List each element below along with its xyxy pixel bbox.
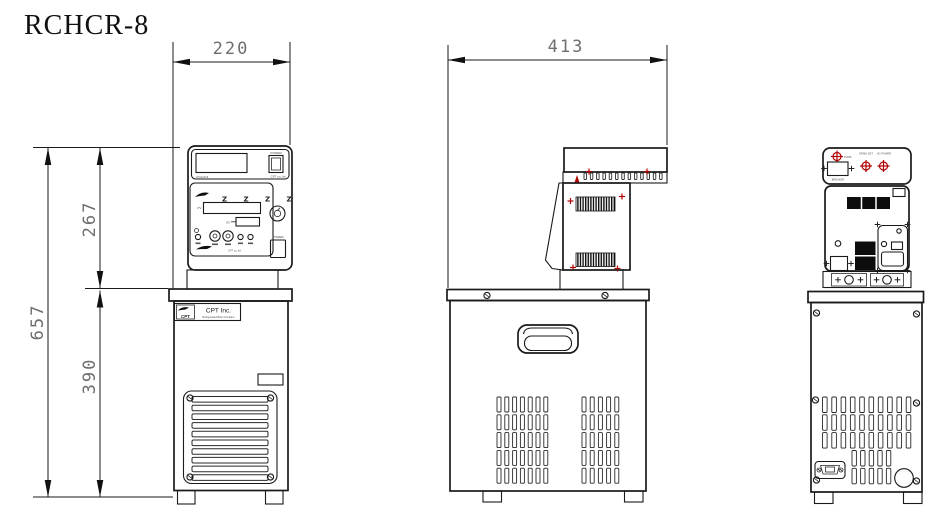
breaker-box <box>828 162 849 176</box>
vent-slot <box>192 457 268 463</box>
setpoint-display <box>204 203 261 214</box>
vent-slot <box>513 450 517 465</box>
vent-slot <box>520 415 524 430</box>
arrowhead-left <box>173 59 190 66</box>
front-foot-right <box>266 491 284 505</box>
vent-slot <box>823 397 828 413</box>
plus-marker <box>905 268 911 274</box>
vent-slot <box>544 468 548 483</box>
display-caption: RCHCR-8 <box>197 175 209 179</box>
vent-slot <box>850 415 855 431</box>
vent-slot <box>869 397 874 413</box>
panel-knob-right-center <box>226 234 230 238</box>
side-head-top-box <box>564 148 667 172</box>
vent-slot <box>888 397 893 413</box>
vent-slot <box>897 415 902 431</box>
ac-power-label: AC POWER <box>877 152 891 156</box>
vent-slot <box>641 173 644 180</box>
arrowhead-down <box>45 480 52 497</box>
panel-brand-text: CPT co.,ltd <box>228 249 241 253</box>
panel-knob-left-center <box>213 234 217 238</box>
power-inlet-socket <box>826 467 835 472</box>
vent-slot <box>544 415 548 430</box>
vent-slot <box>603 173 606 180</box>
arrowhead-up <box>97 148 104 165</box>
vent-slot <box>536 397 540 412</box>
button-label-mark <box>196 243 201 245</box>
rear-vent-block-upper <box>823 397 911 448</box>
vent-slot <box>497 397 501 412</box>
vent-slot <box>878 415 883 431</box>
arrowhead-down <box>97 480 104 497</box>
vent-slot <box>897 433 902 449</box>
drawing-canvas: RCHCR-8 220 413 657 267 390 <box>0 0 946 513</box>
pv-label: PV <box>197 206 201 210</box>
vent-slot <box>832 415 837 431</box>
vent-slot <box>615 415 619 430</box>
pump-label: PUMP <box>844 155 852 159</box>
plate-socket-small <box>892 242 903 250</box>
vent-slot <box>590 468 594 483</box>
badge-company-name: CPT Inc. <box>206 308 231 315</box>
vent-slot <box>660 173 663 180</box>
panel-button <box>238 234 243 239</box>
front-foot-left <box>178 491 196 505</box>
circulation-port-right <box>883 276 892 285</box>
vent-slot <box>192 431 268 437</box>
side-head-sloped-front <box>546 183 564 270</box>
handle-recess <box>525 336 572 351</box>
vent-slot <box>513 415 517 430</box>
side-neck <box>560 270 623 290</box>
handle-upper-curve <box>524 328 573 334</box>
technical-drawing-page: RCHCR-8 220 413 657 267 390 <box>0 0 946 513</box>
rear-foot-left <box>815 492 834 504</box>
plate-hole <box>897 229 901 233</box>
vent-slot <box>869 468 873 484</box>
screw-icon <box>839 468 843 472</box>
plate-hole <box>881 241 886 246</box>
vent-slot <box>852 451 856 467</box>
panel-button <box>195 234 200 239</box>
vent-slot <box>841 433 846 449</box>
vent-slot <box>823 415 828 431</box>
vent-slot <box>832 433 837 449</box>
side-vent-block-left <box>497 397 548 483</box>
vent-slot <box>192 414 268 420</box>
vent-slot <box>520 433 524 448</box>
vent-slot <box>192 466 268 472</box>
front-cabinet-top-plate <box>169 289 292 301</box>
vent-slot <box>536 415 540 430</box>
circulation-port-left <box>845 276 854 285</box>
vent-slot <box>582 433 586 448</box>
vent-slot <box>192 449 268 455</box>
vent-slot <box>860 397 865 413</box>
vent-slot <box>878 451 882 467</box>
dimension-body-height: 390 <box>80 291 103 498</box>
vent-slot <box>615 468 619 483</box>
vent-slot <box>497 415 501 430</box>
front-view: RCHCR-8 POWER CPT co.,ltd Z Z Z Z PV SV … <box>169 146 299 504</box>
vent-slot <box>192 475 268 481</box>
drain-cap <box>895 469 914 488</box>
badge-logo-text: CPT <box>181 314 190 319</box>
vent-slot <box>869 415 874 431</box>
red-plus-marker <box>568 198 574 204</box>
vent-slot <box>906 433 911 449</box>
vent-slot <box>861 451 865 467</box>
vent-slot <box>528 433 532 448</box>
vent-slot <box>607 415 611 430</box>
side-view <box>447 148 667 502</box>
panel-knob-right <box>223 231 233 241</box>
vent-slot <box>520 468 524 483</box>
vent-slot <box>615 450 619 465</box>
connector-pins <box>584 173 662 180</box>
vent-slot <box>886 468 890 484</box>
drain-port-crosshair-icon <box>860 160 872 172</box>
dim-value-267: 267 <box>80 201 100 238</box>
vent-slot <box>832 397 837 413</box>
vent-slot <box>513 433 517 448</box>
screw-icon <box>835 241 841 247</box>
dimension-total-height: 657 <box>28 148 180 498</box>
side-foot-left <box>483 491 502 502</box>
vent-slot <box>536 433 540 448</box>
small-port <box>893 189 905 197</box>
drawing-title: RCHCR-8 <box>24 10 149 41</box>
front-neck <box>187 270 278 289</box>
dim-value-657: 657 <box>28 304 48 341</box>
rear-cabinet-body <box>811 303 922 493</box>
red-arrow-marker <box>574 175 579 183</box>
vent-slot <box>897 397 902 413</box>
vent-slot <box>878 397 883 413</box>
vent-slot <box>906 415 911 431</box>
vent-slot <box>841 397 846 413</box>
vent-slot <box>906 397 911 413</box>
rear-view: PUMP BREAKER DRAIN SET AC POWER <box>808 148 924 504</box>
vent-slot <box>841 415 846 431</box>
front-lcd-display <box>196 154 247 173</box>
vent-slot <box>528 415 532 430</box>
plus-marker <box>821 166 827 172</box>
vent-slot <box>615 397 619 412</box>
brand-text-top: CPT co.,ltd <box>271 175 286 179</box>
screw-icon <box>817 468 821 472</box>
rear-vent-block-lower <box>852 451 891 484</box>
drain-label: DRAIN SET <box>859 152 873 156</box>
vent-slot <box>653 173 656 180</box>
vent-slot <box>497 433 501 448</box>
dim-value-220: 220 <box>213 39 250 59</box>
dim-value-413: 413 <box>548 37 585 57</box>
vent-slot <box>607 450 611 465</box>
vent-slot <box>850 433 855 449</box>
arrowhead-up <box>45 148 52 165</box>
vent-slot <box>192 423 268 429</box>
vent-slot <box>823 433 828 449</box>
vent-slot <box>520 397 524 412</box>
vent-slot <box>536 468 540 483</box>
panel-button <box>248 234 253 239</box>
vent-slot <box>850 397 855 413</box>
screw-icon <box>913 478 919 484</box>
badge-swoosh-icon <box>178 307 189 310</box>
power-button-inner <box>272 158 281 170</box>
button-label-mark <box>248 243 253 245</box>
vent-slot <box>852 468 856 484</box>
vent-slot <box>582 397 586 412</box>
rear-foot-right <box>904 492 923 504</box>
vent-slot <box>622 173 625 180</box>
rear-cabinet-top-plate <box>808 292 924 303</box>
plus-marker <box>848 261 854 267</box>
screw-icon <box>813 310 819 316</box>
vent-slot <box>505 450 509 465</box>
button-label-mark <box>238 243 243 245</box>
vent-slot <box>582 415 586 430</box>
vent-slot <box>869 451 873 467</box>
arrowhead-right <box>650 57 667 64</box>
nameplate <box>258 374 283 385</box>
button-label-mark <box>225 244 231 246</box>
arrowhead-right <box>273 59 290 66</box>
vent-slot <box>590 415 594 430</box>
indicator-icon <box>195 229 199 233</box>
side-foot-right <box>625 491 644 502</box>
plus-marker <box>895 277 901 283</box>
vent-slot <box>528 468 532 483</box>
vent-slot <box>616 173 619 180</box>
vent-slot <box>860 433 865 449</box>
vent-slot <box>505 415 509 430</box>
vent-slot <box>536 450 540 465</box>
breaker-label: BREAKER <box>832 178 845 182</box>
button-label-mark <box>212 244 218 246</box>
dimension-head-height: 267 <box>80 148 168 289</box>
side-head-vent-lower <box>576 253 615 267</box>
vent-slot <box>888 415 893 431</box>
vent-slot <box>609 173 612 180</box>
vent-slot <box>520 450 524 465</box>
vent-slot <box>628 173 631 180</box>
vent-slot <box>598 415 602 430</box>
vent-slot-black-upper <box>855 242 876 256</box>
red-plus-marker <box>619 194 625 200</box>
vent-slot <box>607 397 611 412</box>
screw-icon <box>602 292 608 298</box>
vent-slot <box>607 468 611 483</box>
vent-slot <box>497 450 501 465</box>
plus-marker <box>858 277 864 283</box>
vent-slot <box>582 468 586 483</box>
panel-logo-swoosh-icon <box>196 246 212 250</box>
vent-slot <box>860 415 865 431</box>
panel-knob-left <box>210 231 220 241</box>
vent-slot <box>192 405 268 411</box>
vent-slot <box>528 450 532 465</box>
grille-slats <box>192 397 268 481</box>
vent-slot <box>513 468 517 483</box>
temperature-knob <box>270 206 285 221</box>
vent-slot <box>886 451 890 467</box>
vent-slot <box>878 433 883 449</box>
vent-slot <box>861 468 865 484</box>
pump-port-crosshair-icon <box>831 151 843 163</box>
vent-slot <box>634 173 637 180</box>
vent-slot <box>597 173 600 180</box>
vent-slot <box>192 440 268 446</box>
vent-slot <box>590 433 594 448</box>
sub-display <box>236 218 260 227</box>
vent-slot <box>598 397 602 412</box>
vent-slot <box>615 433 619 448</box>
badge-subtext: Refrigerated Bath Circulator <box>202 315 234 319</box>
plus-marker <box>849 166 855 172</box>
side-head-vent-upper <box>576 197 615 211</box>
vent-slot <box>513 397 517 412</box>
vent-slot <box>584 173 587 180</box>
arrowhead-left <box>448 57 465 64</box>
vent-slot <box>598 433 602 448</box>
screw-icon <box>913 400 919 406</box>
vent-slot <box>544 433 548 448</box>
vent-slot <box>544 397 548 412</box>
knob-pointer <box>278 208 281 211</box>
power-label-bottom: POWER <box>272 235 284 239</box>
temperature-knob-inner <box>274 210 280 216</box>
plate-socket-large <box>882 252 904 266</box>
vent-slot <box>528 397 532 412</box>
dim-value-390: 390 <box>80 358 100 395</box>
dimension-side-depth: 413 <box>448 37 667 288</box>
screw-icon <box>913 311 919 317</box>
vent-slot <box>598 468 602 483</box>
terminal-bar <box>847 197 890 209</box>
power-port-crosshair-icon <box>878 160 890 172</box>
vent-slot <box>505 433 509 448</box>
vent-slot <box>888 433 893 449</box>
plus-marker <box>835 277 841 283</box>
plus-marker <box>874 277 880 283</box>
vent-slot <box>590 397 594 412</box>
vent-slot <box>192 397 268 403</box>
side-cabinet-top-plate <box>447 290 649 301</box>
sv-label: SV <box>226 221 230 225</box>
arrowhead-down <box>97 271 104 288</box>
vent-slot <box>590 173 593 180</box>
screw-icon <box>812 397 818 403</box>
brand-swoosh-icon <box>195 193 209 198</box>
vent-slot <box>598 450 602 465</box>
vent-slot <box>607 433 611 448</box>
vent-slot <box>590 450 594 465</box>
vent-slot <box>505 397 509 412</box>
side-vent-block-right <box>582 397 619 483</box>
screw-icon <box>484 292 490 298</box>
vent-slot <box>878 468 882 484</box>
vent-slot <box>869 433 874 449</box>
vent-slot-black-lower <box>855 257 876 271</box>
power-inlet <box>815 462 845 479</box>
vent-slot <box>582 450 586 465</box>
arrowhead-up <box>97 291 104 308</box>
vent-slot <box>505 468 509 483</box>
vent-slot <box>497 468 501 483</box>
outlet-box <box>831 257 848 271</box>
vent-slot <box>544 450 548 465</box>
power-label-top: POWER <box>270 151 282 155</box>
